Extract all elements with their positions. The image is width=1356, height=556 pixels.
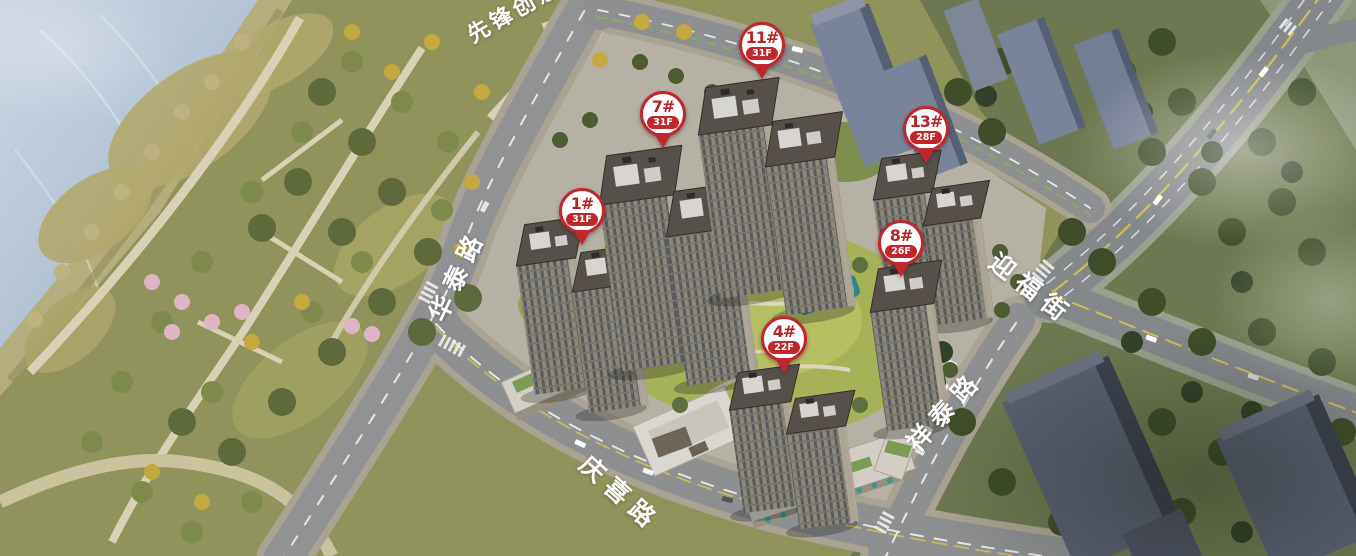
aerial-render [0,0,1356,556]
pin-tail [753,64,771,79]
building-floors: 22F [768,341,800,355]
pin-tail [573,230,591,245]
building-pin-13[interactable]: 13# 28F [903,106,949,163]
pin-tail [775,358,793,373]
building-pin-4[interactable]: 4# 22F [761,316,807,373]
pin-circle: 13# 28F [903,106,949,152]
pin-circle: 4# 22F [761,316,807,362]
building-pin-1[interactable]: 1# 31F [559,188,605,245]
building-number: 8# [890,228,913,244]
building-number: 11# [746,30,779,46]
pin-circle: 11# 31F [739,22,785,68]
building-floors: 31F [566,213,598,227]
building-number: 1# [571,196,594,212]
pin-tail [654,133,672,148]
pin-circle: 8# 26F [878,220,924,266]
building-number: 13# [910,114,943,130]
building-pin-7[interactable]: 7# 31F [640,91,686,148]
aerial-masterplan-view: 华泰路 迎福街 祥泰路 庆喜路 先锋创意 1# 31F 4# 22F 7# 31… [0,0,1356,556]
building-pin-11[interactable]: 11# 31F [739,22,785,79]
building-floors: 26F [885,245,917,259]
pin-tail [917,148,935,163]
pin-circle: 1# 31F [559,188,605,234]
building-number: 7# [652,99,675,115]
building-floors: 31F [746,47,778,61]
building-number: 4# [773,324,796,340]
building-floors: 31F [647,116,679,130]
building-floors: 28F [910,131,942,145]
pin-circle: 7# 31F [640,91,686,137]
pin-tail [892,262,910,277]
building-pin-8[interactable]: 8# 26F [878,220,924,277]
